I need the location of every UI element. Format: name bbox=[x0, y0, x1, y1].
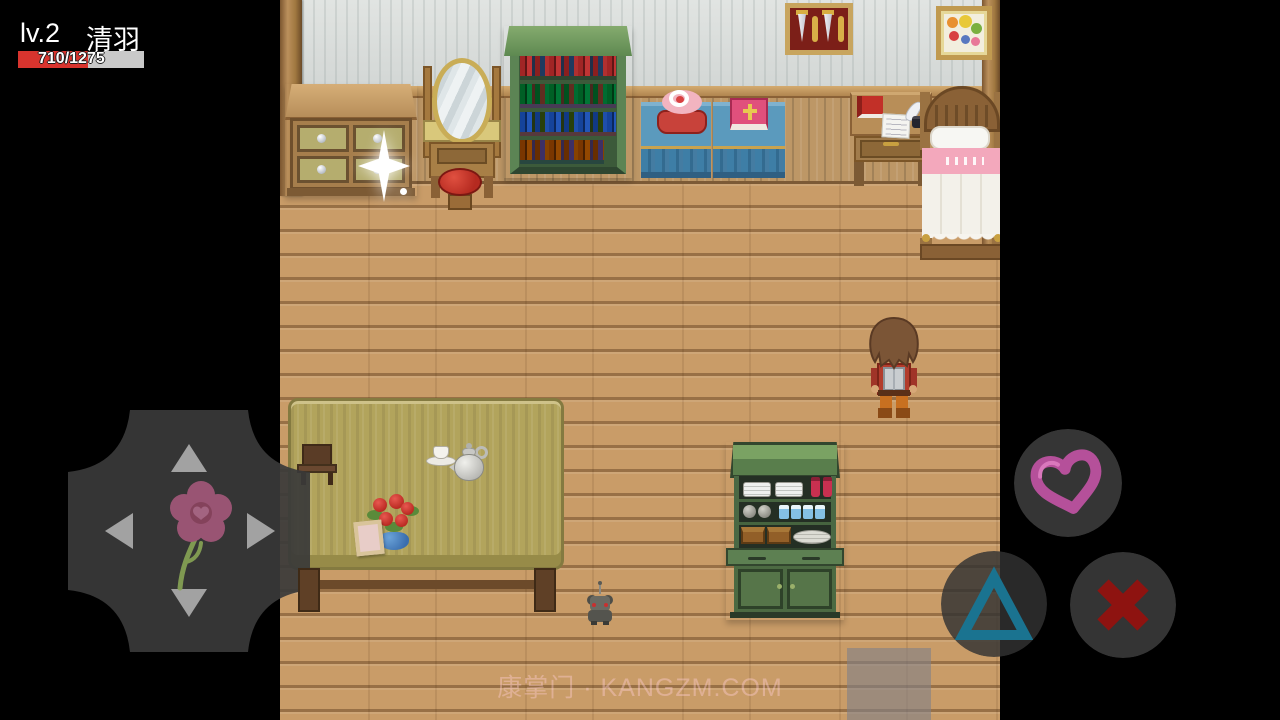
x-button[interactable] bbox=[1070, 552, 1176, 658]
hp-text: 710/1275 bbox=[38, 50, 105, 68]
fruit-picture-frame bbox=[936, 6, 992, 60]
book-row bbox=[520, 56, 616, 80]
wall-upper bbox=[280, 0, 1000, 86]
triangle-button[interactable] bbox=[941, 551, 1047, 657]
hud: lv.2 清羽 710/1275 bbox=[0, 0, 280, 90]
bible bbox=[730, 98, 768, 130]
heart-button[interactable] bbox=[1014, 429, 1122, 537]
pillow bbox=[930, 126, 990, 150]
kitchen-cabinet bbox=[726, 442, 844, 620]
hp-bar: 710/1275 bbox=[18, 51, 144, 68]
bed bbox=[920, 86, 1000, 264]
red-stool bbox=[438, 168, 482, 216]
bookshelf bbox=[504, 26, 632, 178]
mouse bbox=[583, 580, 617, 626]
teapot bbox=[449, 440, 489, 486]
sparkle-effect bbox=[358, 130, 410, 202]
book-row bbox=[520, 84, 616, 108]
cake bbox=[654, 86, 710, 134]
oval-mirror bbox=[432, 58, 492, 144]
game-viewport[interactable] bbox=[280, 0, 1000, 720]
book-row bbox=[520, 140, 604, 164]
book-row bbox=[520, 112, 616, 136]
player-character bbox=[858, 316, 930, 420]
red-book bbox=[857, 96, 883, 118]
watermark: 康掌门 · KANGZM.COM bbox=[497, 668, 782, 704]
dagger-display-frame bbox=[785, 3, 853, 55]
photo-frame bbox=[353, 520, 384, 557]
game-screen: lv.2 清羽 710/1275 bbox=[0, 0, 1280, 720]
shadow-overlay bbox=[847, 648, 931, 720]
dpad[interactable] bbox=[68, 410, 310, 652]
